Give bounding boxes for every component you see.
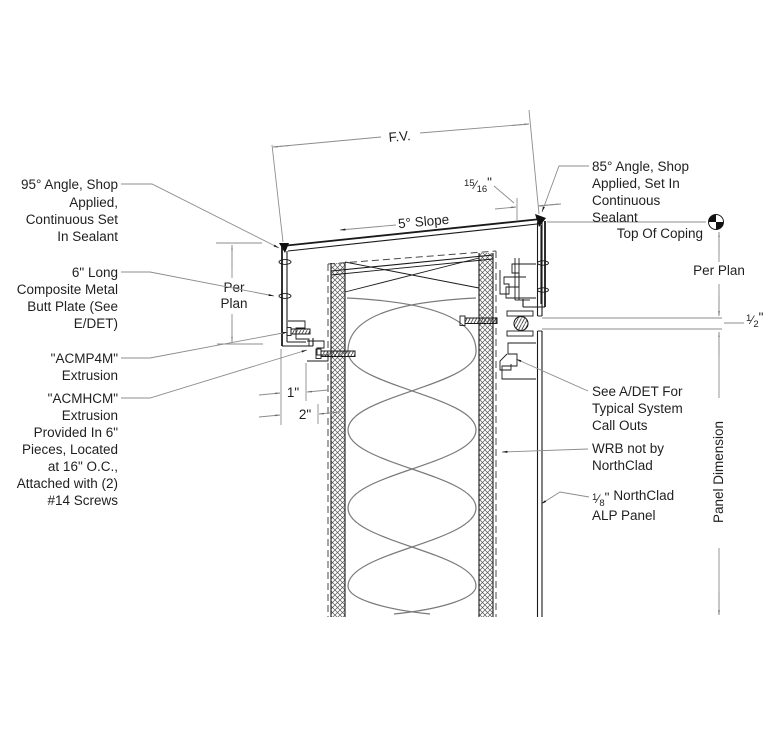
label-angle95: 95° Angle, Shop Applied, Continuous Set … xyxy=(21,177,118,244)
dim-panel-dimension: Panel Dimension xyxy=(711,332,726,615)
top-of-coping-label: Top Of Coping xyxy=(617,226,703,241)
dim-half-inch-label: 1⁄2" xyxy=(746,310,764,330)
label-angle95-line4: In Sealant xyxy=(57,229,118,244)
label-acmhcm-line1: "ACMHCM" xyxy=(48,391,119,406)
dim-15-16: 15⁄16" xyxy=(464,175,561,220)
label-alp-panel-line1: 1⁄8"NorthClad xyxy=(592,488,674,509)
leader-wrb xyxy=(502,449,588,452)
label-angle85-line4: Sealant xyxy=(592,210,638,225)
label-butt-plate-line1: 6" Long xyxy=(72,265,118,280)
wall-top-framing xyxy=(331,255,493,292)
label-butt-plate-line3: Butt Plate (See xyxy=(27,299,118,314)
label-angle95-line2: Applied, xyxy=(69,195,118,210)
panel-splice-assembly xyxy=(507,311,533,336)
label-angle85: 85° Angle, Shop Applied, Set In Continuo… xyxy=(592,159,689,225)
coping-cap xyxy=(279,214,549,346)
label-acmp4m: "ACMP4M" Extrusion xyxy=(51,351,119,383)
leader-acmhcm xyxy=(121,350,307,398)
dim-per-plan-left-line1: Per xyxy=(223,280,245,295)
coping-fastener-icon xyxy=(538,261,549,265)
leader-see-a-det xyxy=(516,359,588,391)
leader-angle95 xyxy=(121,184,279,248)
dim-per-plan-right-label: Per Plan xyxy=(693,263,745,278)
label-angle85-line2: Applied, Set In xyxy=(592,176,680,191)
dim-two-inch-label: 2" xyxy=(299,407,312,422)
datum-target-icon xyxy=(709,215,724,230)
label-see-a-det: See A/DET For Typical System Call Outs xyxy=(592,384,683,433)
label-angle85-line3: Continuous xyxy=(592,193,661,208)
panel-clip-upper xyxy=(500,264,536,298)
dim-15-16-label: 15⁄16" xyxy=(464,175,492,195)
leader-butt-plate xyxy=(121,272,274,296)
dim-fv-label: F.V. xyxy=(388,128,411,145)
label-acmhcm-line5: at 16" O.C., xyxy=(48,459,118,474)
dim-per-plan-left-line2: Plan xyxy=(220,296,247,311)
label-acmp4m-line2: Extrusion xyxy=(62,368,118,383)
label-acmhcm-line6: Attached with (2) xyxy=(17,476,118,491)
label-wrb-line2: NorthClad xyxy=(592,458,653,473)
coping-fastener-icon xyxy=(538,288,549,292)
label-acmhcm: "ACMHCM" Extrusion Provided In 6" Pieces… xyxy=(17,391,119,508)
label-acmp4m-line1: "ACMP4M" xyxy=(51,351,119,366)
detail-drawing-canvas: F.V. 15⁄16" 5° Slope Per Plan 1" xyxy=(0,0,768,735)
label-angle95-line3: Continuous Set xyxy=(26,212,119,227)
dim-slope-label: 5° Slope xyxy=(397,212,449,231)
dim-panel-dimension-label: Panel Dimension xyxy=(711,421,726,523)
label-wrb-line1: WRB not by xyxy=(592,441,664,456)
label-butt-plate-line2: Composite Metal xyxy=(17,282,118,297)
label-see-a-det-line1: See A/DET For xyxy=(592,384,683,399)
panel-clip-lower xyxy=(500,343,536,379)
dim-per-plan-left: Per Plan xyxy=(216,243,263,344)
label-acmhcm-line7: #14 Screws xyxy=(47,493,118,508)
label-butt-plate: 6" Long Composite Metal Butt Plate (See … xyxy=(17,265,118,331)
label-angle95-line1: 95° Angle, Shop xyxy=(21,177,118,192)
sheathing-left xyxy=(331,263,345,617)
dim-half-inch: 1⁄2" xyxy=(542,310,764,330)
batt-insulation xyxy=(347,298,476,614)
leader-alp-panel xyxy=(541,492,589,504)
label-see-a-det-line2: Typical System xyxy=(592,401,683,416)
leader-lines xyxy=(121,166,589,504)
label-wrb: WRB not by NorthClad xyxy=(592,441,664,473)
label-see-a-det-line3: Call Outs xyxy=(592,418,648,433)
dim-slope: 5° Slope xyxy=(340,212,450,231)
dim-per-plan-right: Per Plan xyxy=(693,232,745,316)
label-alp-panel: 1⁄8"NorthClad ALP Panel xyxy=(592,488,674,523)
coping-fastener-icon xyxy=(279,294,291,299)
label-butt-plate-line4: E/DET) xyxy=(74,316,118,331)
label-angle85-line1: 85° Angle, Shop xyxy=(592,159,689,174)
label-acmhcm-line2: Extrusion xyxy=(62,408,118,423)
sheathing-right xyxy=(479,253,493,617)
wall-assembly xyxy=(328,251,496,617)
dim-one-inch-label: 1" xyxy=(287,385,300,400)
label-acmhcm-line3: Provided In 6" xyxy=(34,425,119,440)
coping-fastener-icon xyxy=(279,260,291,265)
coping-detail-svg: F.V. 15⁄16" 5° Slope Per Plan 1" xyxy=(0,0,768,735)
label-alp-panel-line2: ALP Panel xyxy=(592,508,656,523)
leader-acmp4m xyxy=(121,332,288,358)
label-acmhcm-line4: Pieces, Located xyxy=(22,442,118,457)
